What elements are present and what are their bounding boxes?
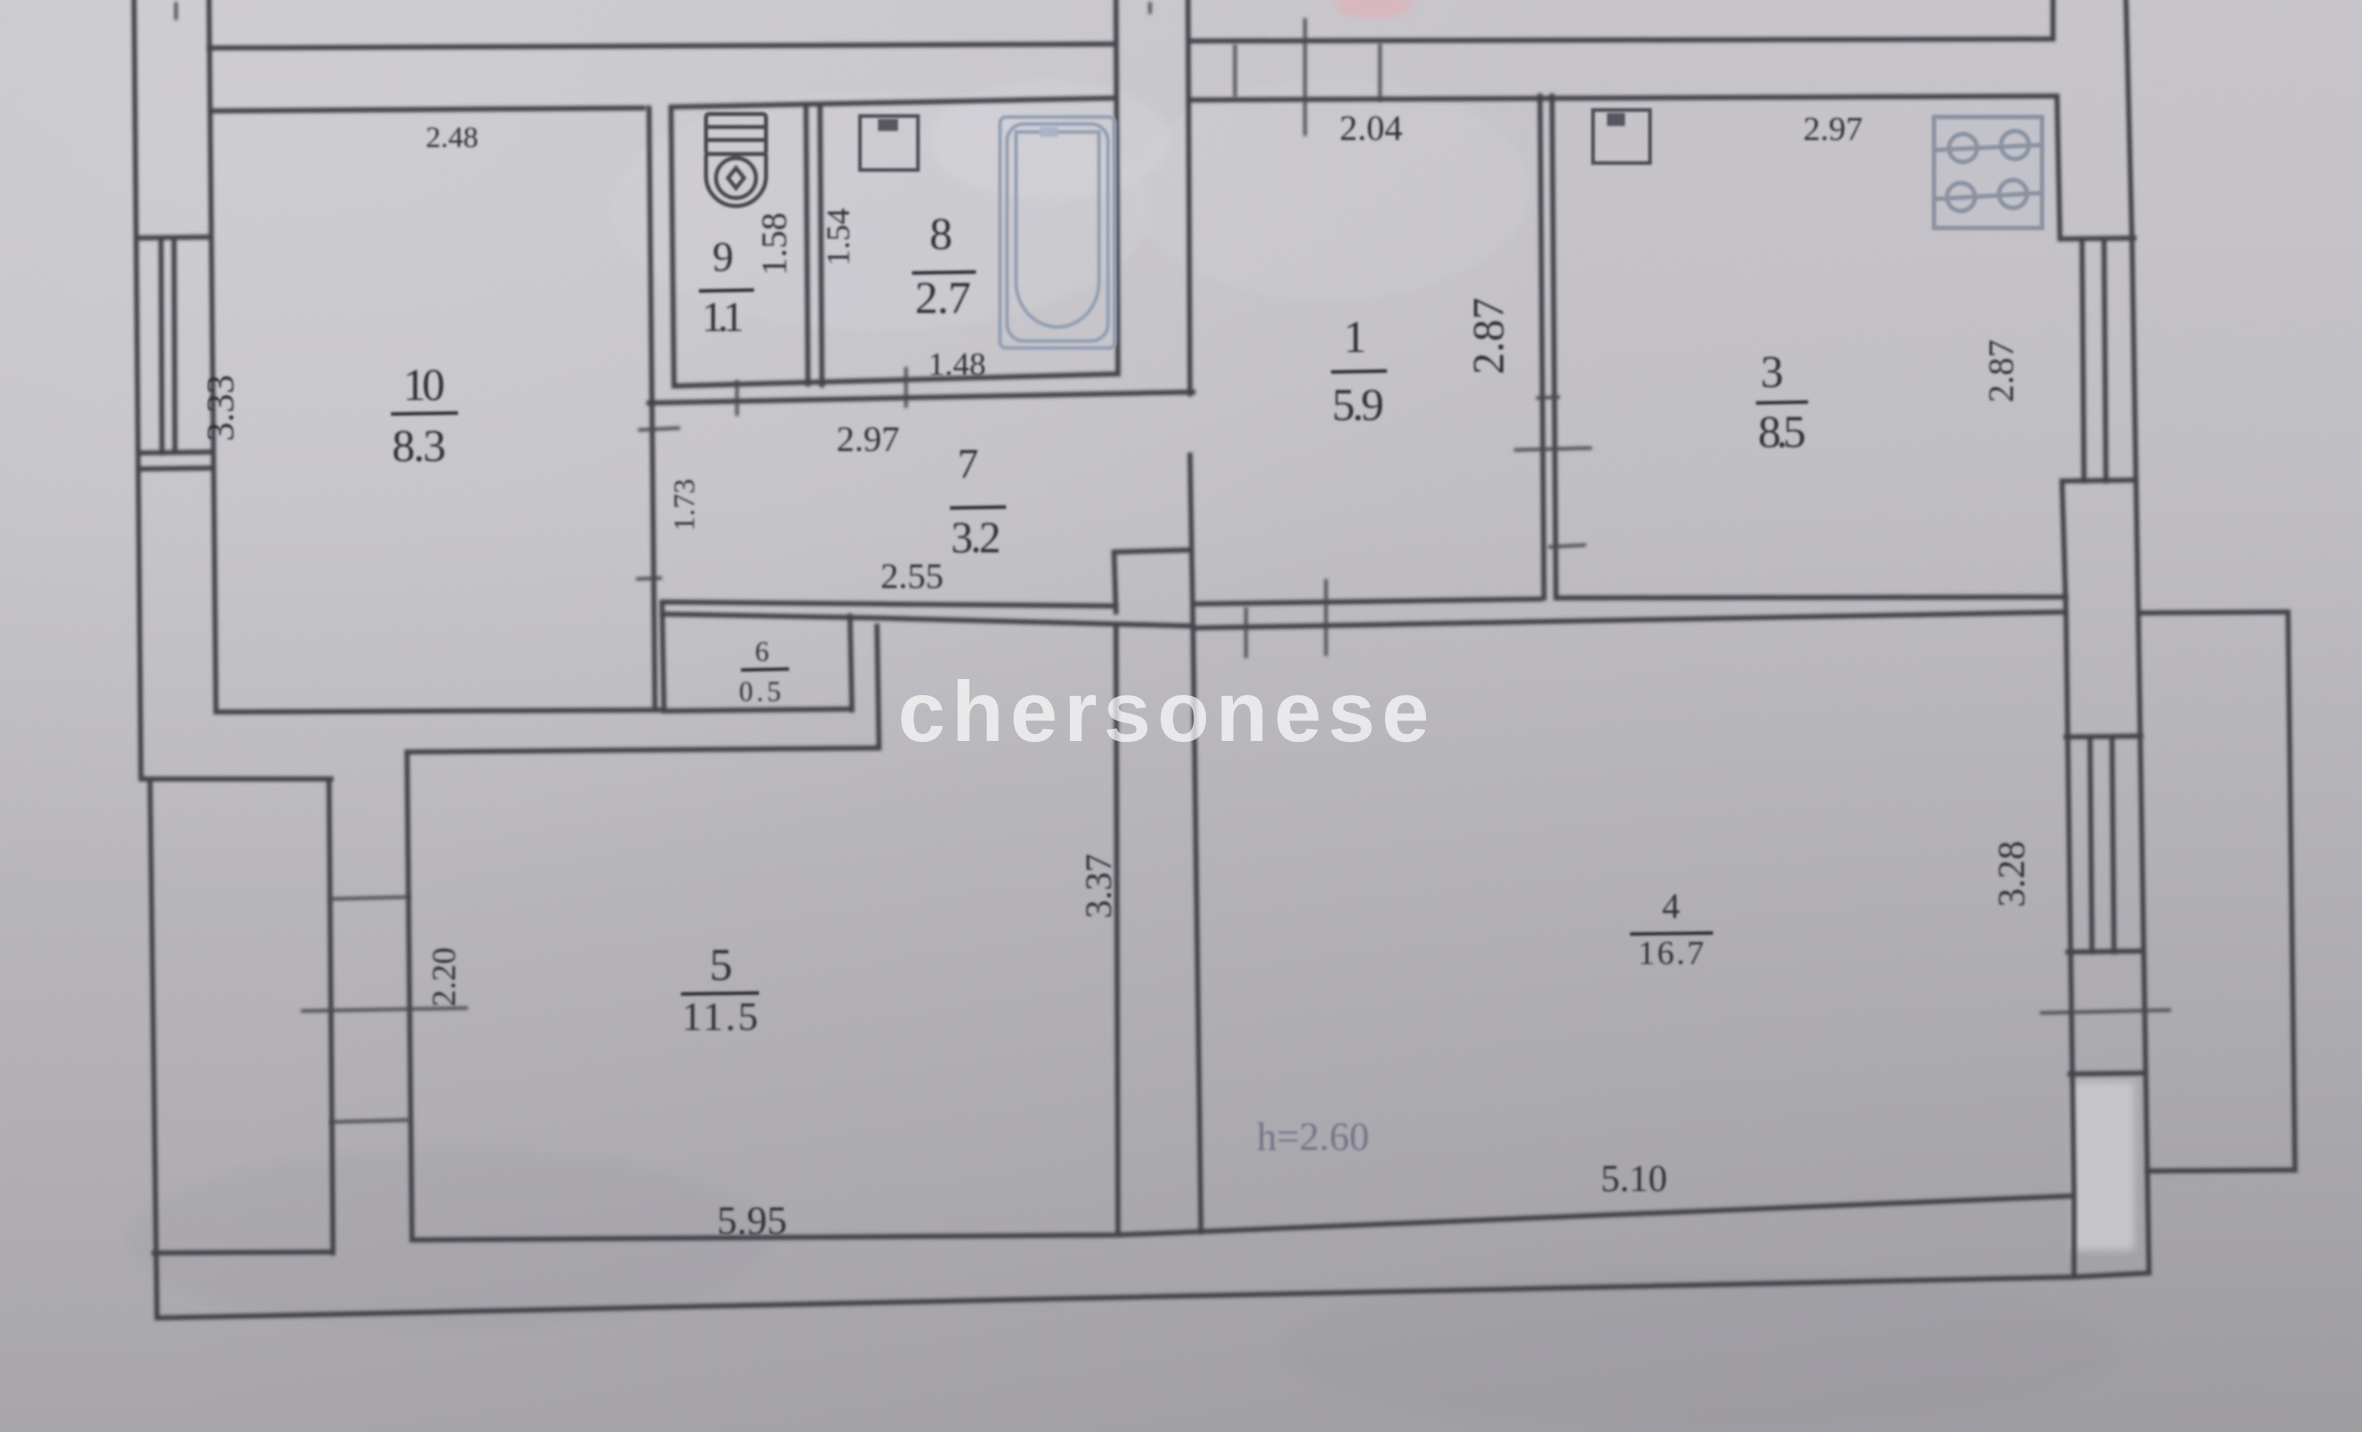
svg-text:1.48: 1.48 [928,347,986,383]
svg-text:3.2: 3.2 [951,513,1001,562]
svg-text:16.7: 16.7 [1638,935,1704,972]
svg-text:1.54: 1.54 [821,208,857,266]
svg-text:2.7: 2.7 [915,272,971,323]
svg-text:1.1: 1.1 [702,295,744,341]
svg-text:3.28: 3.28 [1991,841,2033,908]
svg-text:4: 4 [1662,886,1680,926]
svg-text:3: 3 [1761,346,1784,397]
svg-text:5.10: 5.10 [1601,1158,1668,1200]
svg-text:6: 6 [755,637,769,668]
svg-text:2.04: 2.04 [1340,108,1403,148]
svg-text:5.95: 5.95 [717,1198,787,1243]
svg-text:1.58: 1.58 [754,213,794,276]
svg-text:11.5: 11.5 [682,994,758,1039]
svg-text:8: 8 [930,208,953,259]
svg-text:8.5: 8.5 [1758,406,1806,457]
svg-text:7: 7 [958,442,979,488]
svg-text:5.9: 5.9 [1332,379,1384,430]
svg-text:2.97: 2.97 [1803,111,1863,148]
svg-text:2.48: 2.48 [426,121,479,154]
svg-text:8.3: 8.3 [392,420,446,471]
svg-text:10: 10 [403,359,445,410]
svg-text:2.55: 2.55 [881,556,944,596]
svg-text:1.73: 1.73 [668,479,701,532]
svg-text:h=2.60: h=2.60 [1257,1114,1370,1159]
svg-text:3.33: 3.33 [200,375,242,442]
svg-text:2.87: 2.87 [1464,298,1513,375]
svg-text:chersonese: chersonese [898,665,1435,760]
svg-text:2.87: 2.87 [1981,340,2021,403]
svg-text:2.20: 2.20 [426,947,463,1007]
svg-text:5: 5 [710,939,733,990]
svg-text:9: 9 [713,235,734,281]
svg-text:3.37: 3.37 [1079,854,1120,919]
svg-text:2.97: 2.97 [837,419,900,459]
svg-text:0.5: 0.5 [739,677,781,708]
svg-text:1: 1 [1344,311,1367,362]
